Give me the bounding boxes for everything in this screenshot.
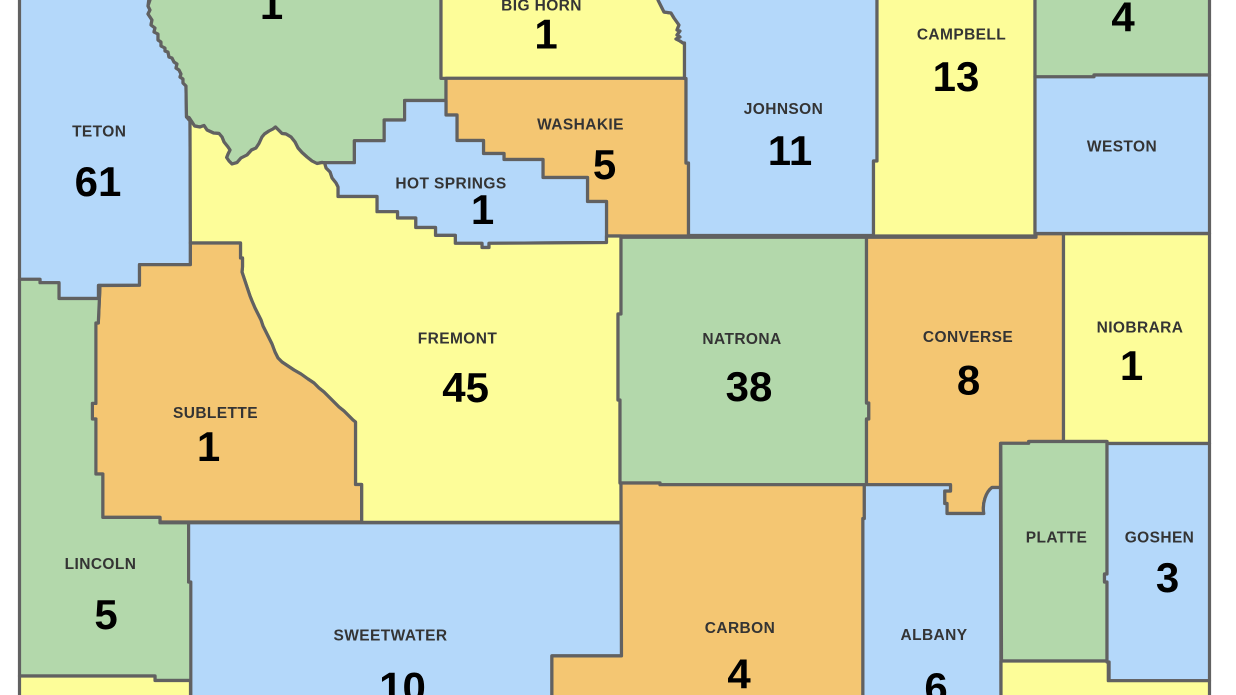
- svg-text:1: 1: [534, 11, 557, 58]
- svg-text:13: 13: [933, 53, 980, 100]
- svg-text:ALBANY: ALBANY: [901, 627, 968, 644]
- svg-text:1: 1: [1120, 342, 1143, 389]
- svg-text:5: 5: [94, 591, 117, 638]
- svg-text:CARBON: CARBON: [705, 620, 775, 637]
- svg-text:LINCOLN: LINCOLN: [65, 556, 137, 573]
- svg-text:5: 5: [593, 141, 616, 188]
- svg-text:1: 1: [471, 186, 494, 233]
- svg-text:4: 4: [727, 651, 751, 695]
- svg-text:CONVERSE: CONVERSE: [923, 329, 1013, 346]
- svg-text:11: 11: [768, 127, 812, 174]
- svg-text:WASHAKIE: WASHAKIE: [537, 117, 624, 134]
- svg-text:45: 45: [442, 364, 489, 411]
- svg-text:3: 3: [1156, 554, 1179, 601]
- svg-text:61: 61: [75, 158, 122, 205]
- svg-text:38: 38: [726, 363, 773, 410]
- svg-text:NATRONA: NATRONA: [702, 331, 781, 348]
- svg-text:10: 10: [379, 664, 426, 695]
- svg-text:TETON: TETON: [72, 123, 126, 140]
- svg-text:4: 4: [1111, 0, 1135, 40]
- svg-text:JOHNSON: JOHNSON: [744, 101, 823, 118]
- svg-text:FREMONT: FREMONT: [418, 331, 498, 348]
- svg-text:GOSHEN: GOSHEN: [1125, 530, 1195, 547]
- svg-text:WESTON: WESTON: [1087, 139, 1157, 156]
- svg-text:6: 6: [924, 664, 947, 695]
- svg-text:1: 1: [260, 0, 283, 28]
- svg-text:SUBLETTE: SUBLETTE: [173, 405, 258, 422]
- svg-text:PLATTE: PLATTE: [1026, 530, 1088, 547]
- svg-text:1: 1: [197, 423, 220, 470]
- svg-text:CAMPBELL: CAMPBELL: [917, 27, 1006, 44]
- svg-text:SWEETWATER: SWEETWATER: [334, 628, 448, 645]
- svg-text:8: 8: [957, 357, 980, 404]
- svg-text:NIOBRARA: NIOBRARA: [1097, 320, 1184, 337]
